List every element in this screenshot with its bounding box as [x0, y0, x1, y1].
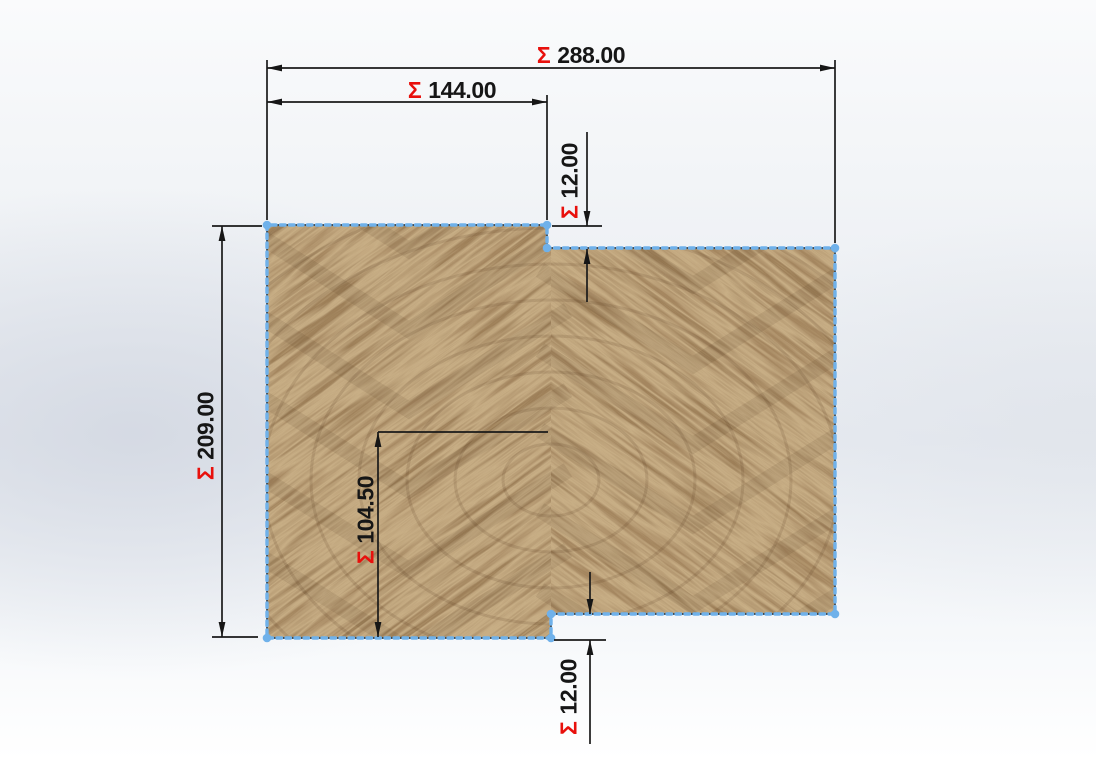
dimension-value: 12.00: [557, 143, 583, 199]
dimension-value: 144.00: [428, 77, 496, 103]
dimension-left-width[interactable]: [267, 95, 547, 220]
vertex-dot[interactable]: [263, 221, 272, 230]
dimension-total-height[interactable]: [212, 226, 262, 637]
wood-grain-left: [0, 0, 1096, 760]
vertex-dot[interactable]: [543, 221, 552, 230]
dimension-label-total-width[interactable]: Σ288.00: [537, 42, 625, 69]
vertex-dot[interactable]: [263, 634, 272, 643]
dimension-label-mid-height[interactable]: Σ104.50: [353, 476, 380, 564]
vertex-dot[interactable]: [543, 244, 552, 253]
dimension-label-total-height[interactable]: Σ209.00: [193, 392, 220, 480]
sigma-prefix: Σ: [408, 77, 421, 103]
sigma-prefix: Σ: [556, 722, 582, 735]
sigma-prefix: Σ: [193, 467, 219, 480]
vertex-dot[interactable]: [831, 244, 840, 253]
vertex-dot[interactable]: [547, 610, 556, 619]
dimension-value: 104.50: [353, 476, 379, 544]
vertex-dot[interactable]: [831, 610, 840, 619]
dimension-label-left-width[interactable]: Σ144.00: [408, 77, 496, 104]
dimension-value: 209.00: [193, 392, 219, 460]
sigma-prefix: Σ: [557, 206, 583, 219]
dimension-label-top-step[interactable]: Σ12.00: [557, 143, 584, 219]
dimension-label-bottom-step[interactable]: Σ12.00: [556, 659, 583, 735]
sigma-prefix: Σ: [353, 551, 379, 564]
dimension-value: 288.00: [557, 42, 625, 68]
part-face[interactable]: [0, 0, 1096, 760]
dimension-value: 12.00: [556, 659, 582, 715]
cad-viewport[interactable]: Σ288.00 Σ144.00 Σ12.00 Σ209.00 Σ104.50 Σ…: [0, 0, 1096, 760]
sigma-prefix: Σ: [537, 42, 550, 68]
vertex-dot[interactable]: [547, 634, 556, 643]
part-canvas[interactable]: [0, 0, 1096, 760]
